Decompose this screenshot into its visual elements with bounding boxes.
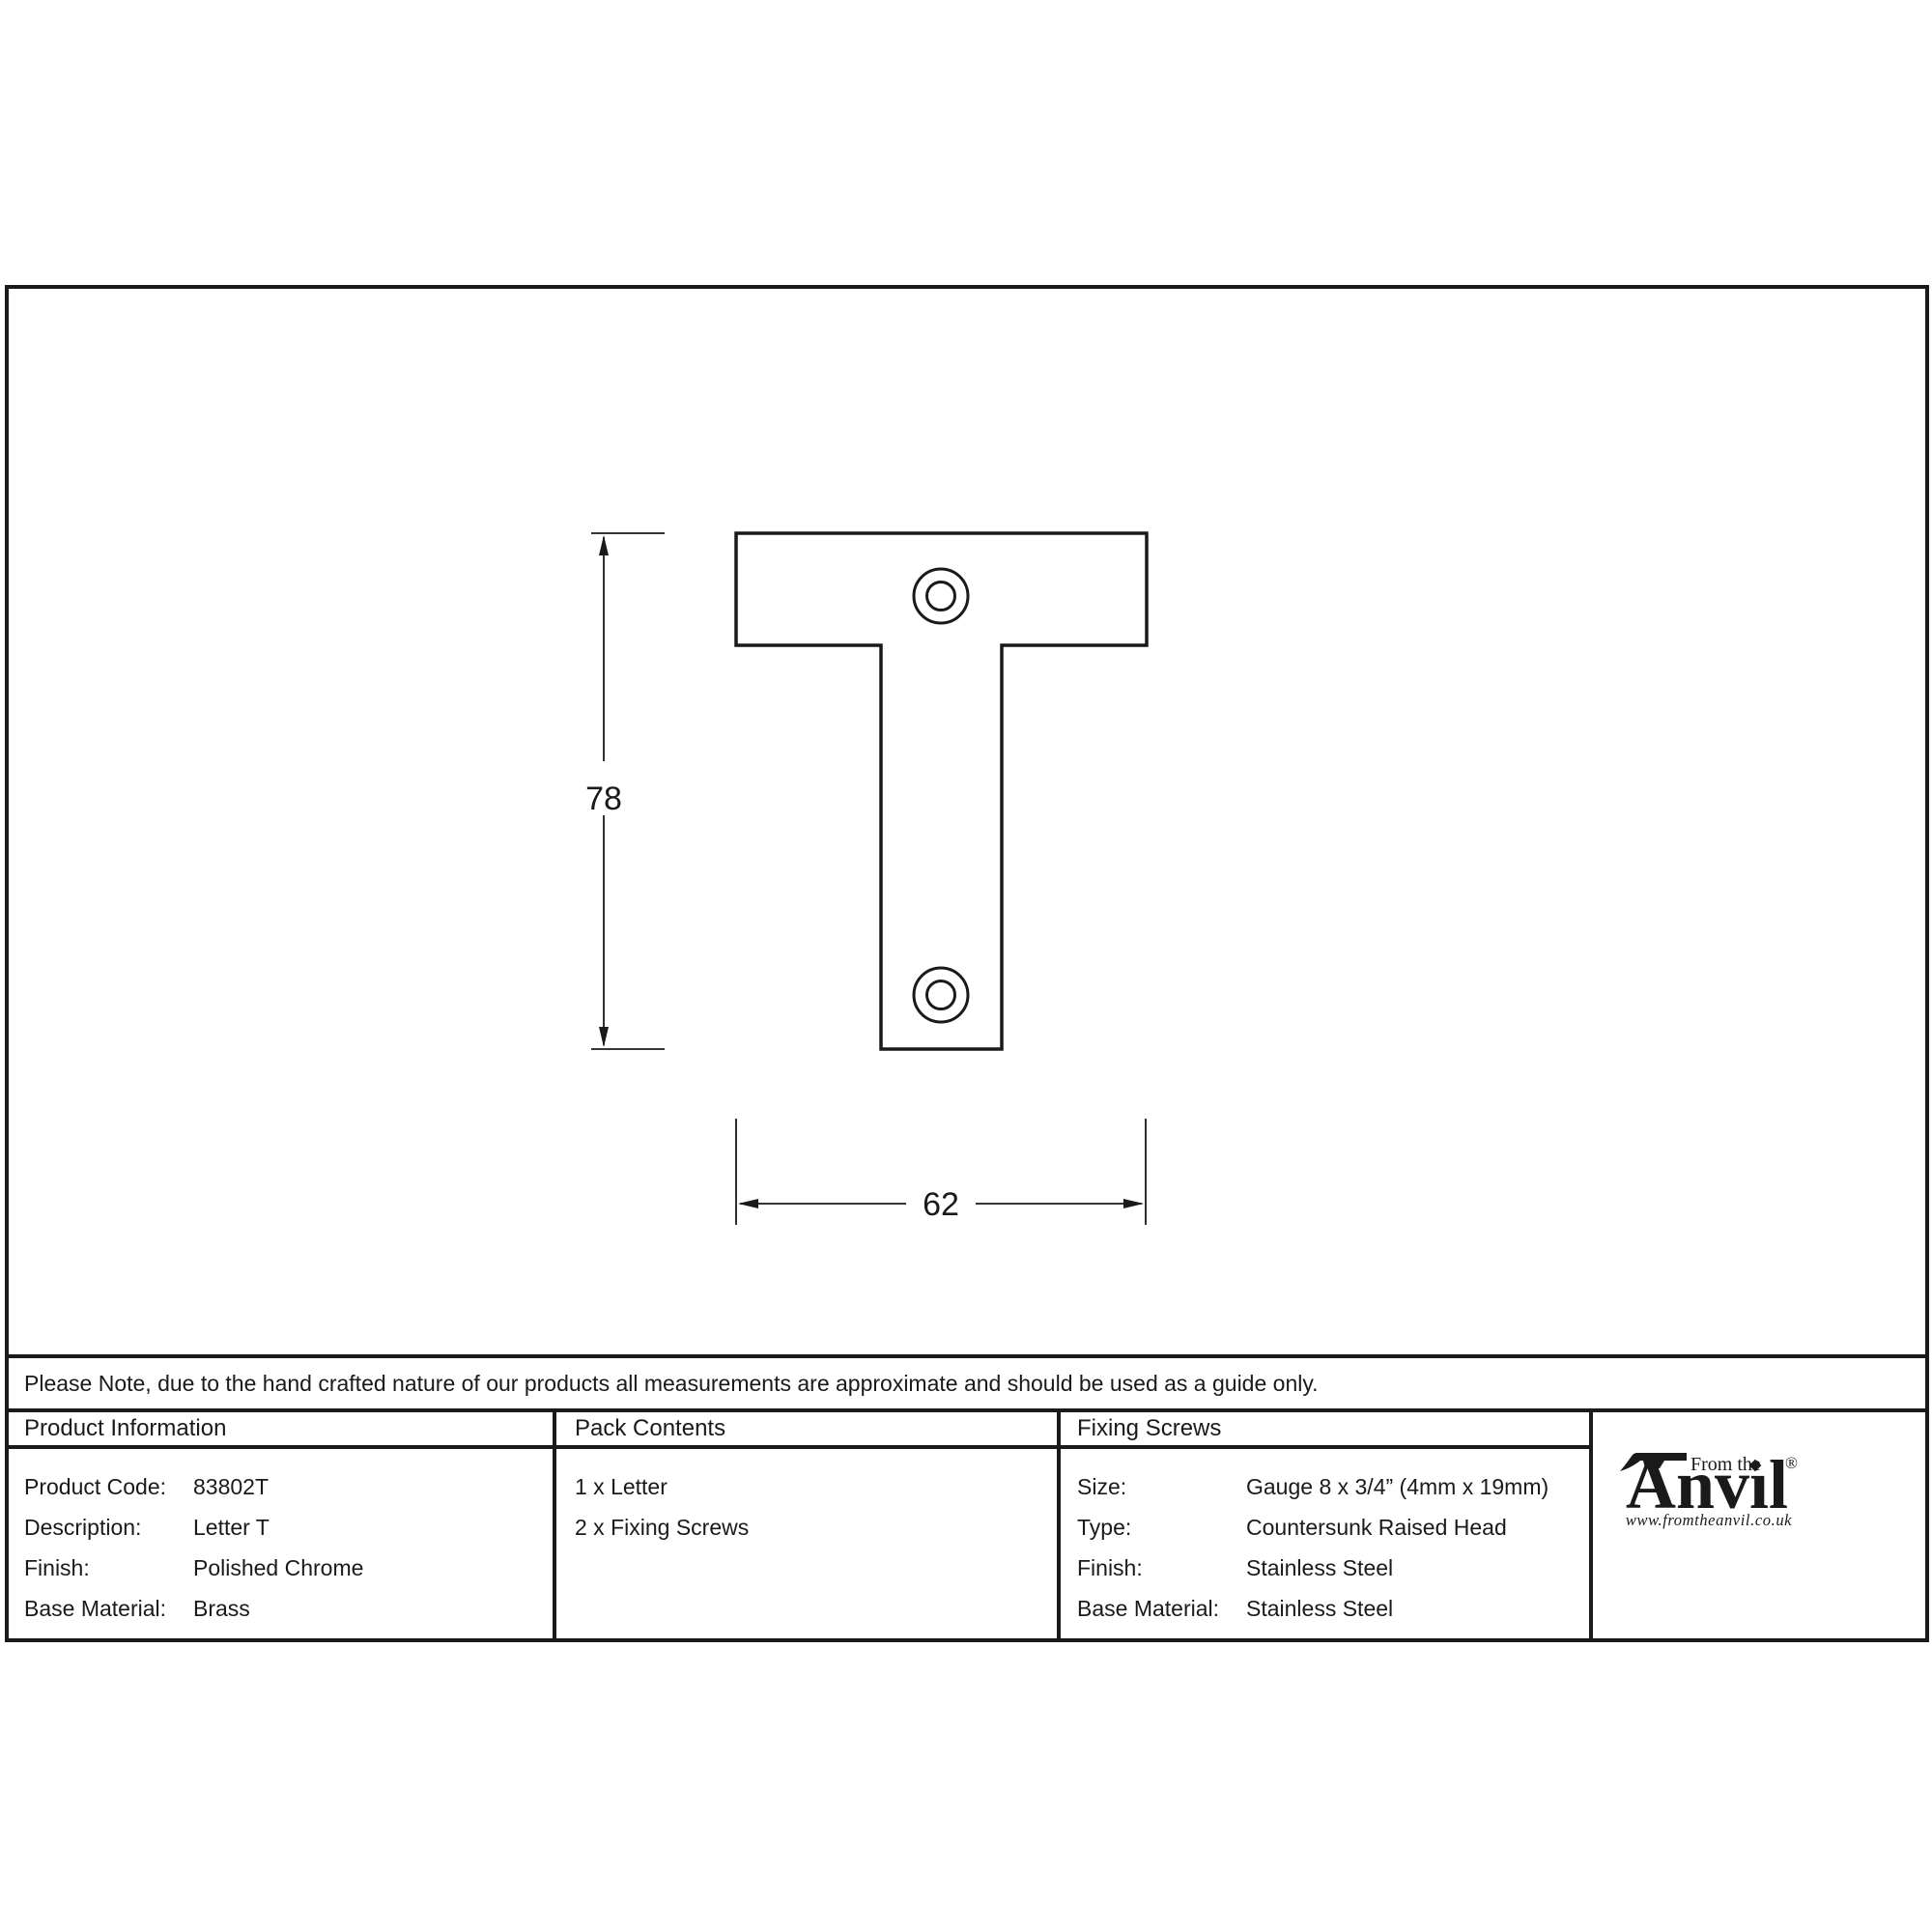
header-pack-contents: Pack Contents <box>575 1412 725 1445</box>
from-the-anvil-logo: A From the nvıl ® www.fromtheanvil.co.uk <box>1599 1441 1918 1548</box>
list-item: 1 x Letter <box>575 1466 749 1507</box>
arrow-left-icon <box>738 1199 758 1208</box>
row-value: Countersunk Raised Head <box>1246 1515 1507 1540</box>
list-item: 2 x Fixing Screws <box>575 1507 749 1548</box>
technical-drawing: 78 62 <box>0 0 1932 1932</box>
row-value: Polished Chrome <box>193 1555 363 1580</box>
row-label: Finish: <box>24 1548 193 1588</box>
table-row: Product Code:83802T <box>24 1466 363 1507</box>
arrow-up-icon <box>599 535 609 555</box>
row-value: Brass <box>193 1596 250 1621</box>
width-dimension-label: 62 <box>923 1186 959 1223</box>
row-label: Type: <box>1077 1507 1246 1548</box>
arrow-right-icon <box>1123 1199 1144 1208</box>
header-fixing-screws: Fixing Screws <box>1077 1412 1221 1445</box>
product-information-cell: Product Code:83802T Description:Letter T… <box>24 1466 363 1629</box>
table-header-divider <box>5 1445 1589 1449</box>
height-dimension-label: 78 <box>585 781 622 817</box>
row-value: Letter T <box>193 1515 270 1540</box>
column-divider-3 <box>1589 1408 1593 1642</box>
column-divider-2 <box>1057 1408 1061 1642</box>
row-label: Base Material: <box>24 1588 193 1629</box>
table-row: Base Material:Stainless Steel <box>1077 1588 1548 1629</box>
table-row: Finish:Polished Chrome <box>24 1548 363 1588</box>
table-row: Description:Letter T <box>24 1507 363 1548</box>
table-top-border <box>5 1408 1929 1412</box>
note-text: Please Note, due to the hand crafted nat… <box>24 1358 1889 1408</box>
pack-contents-cell: 1 x Letter 2 x Fixing Screws <box>575 1466 749 1548</box>
table-row: Base Material:Brass <box>24 1588 363 1629</box>
registered-trademark: ® <box>1785 1454 1798 1472</box>
row-label: Base Material: <box>1077 1588 1246 1629</box>
spec-sheet: 78 62 Please Note, due to the hand craft… <box>0 0 1932 1932</box>
header-product-information: Product Information <box>24 1412 226 1445</box>
row-value: Stainless Steel <box>1246 1596 1393 1621</box>
row-value: Gauge 8 x 3/4” (4mm x 19mm) <box>1246 1474 1548 1499</box>
row-label: Finish: <box>1077 1548 1246 1588</box>
table-row: Size:Gauge 8 x 3/4” (4mm x 19mm) <box>1077 1466 1548 1507</box>
logo-url: www.fromtheanvil.co.uk <box>1626 1511 1792 1529</box>
row-label: Size: <box>1077 1466 1246 1507</box>
row-value: 83802T <box>193 1474 269 1499</box>
arrow-down-icon <box>599 1027 609 1047</box>
fixing-screws-cell: Size:Gauge 8 x 3/4” (4mm x 19mm) Type:Co… <box>1077 1466 1548 1629</box>
row-label: Description: <box>24 1507 193 1548</box>
table-row: Finish:Stainless Steel <box>1077 1548 1548 1588</box>
row-value: Stainless Steel <box>1246 1555 1393 1580</box>
column-divider-1 <box>553 1408 556 1642</box>
table-row: Type:Countersunk Raised Head <box>1077 1507 1548 1548</box>
row-label: Product Code: <box>24 1466 193 1507</box>
